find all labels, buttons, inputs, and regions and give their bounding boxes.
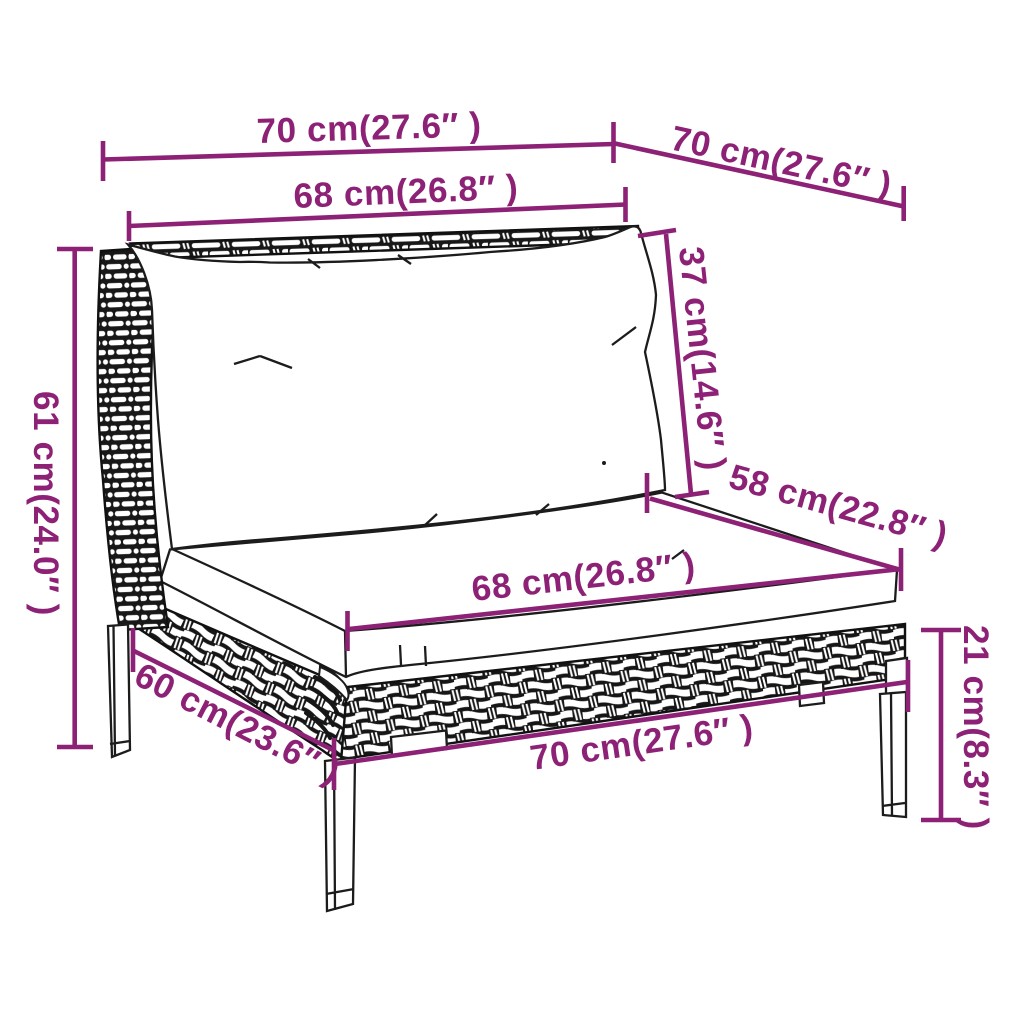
svg-text:70 cm(27.6″ ): 70 cm(27.6″ ) [667, 119, 895, 205]
svg-text:21 cm(8.3″ ): 21 cm(8.3″ ) [956, 625, 995, 830]
svg-text:37 cm(14.6″ ): 37 cm(14.6″ ) [671, 245, 733, 473]
svg-text:61 cm(24.0″ ): 61 cm(24.0″ ) [26, 391, 65, 616]
svg-text:70 cm(27.6″ ): 70 cm(27.6″ ) [256, 105, 482, 151]
